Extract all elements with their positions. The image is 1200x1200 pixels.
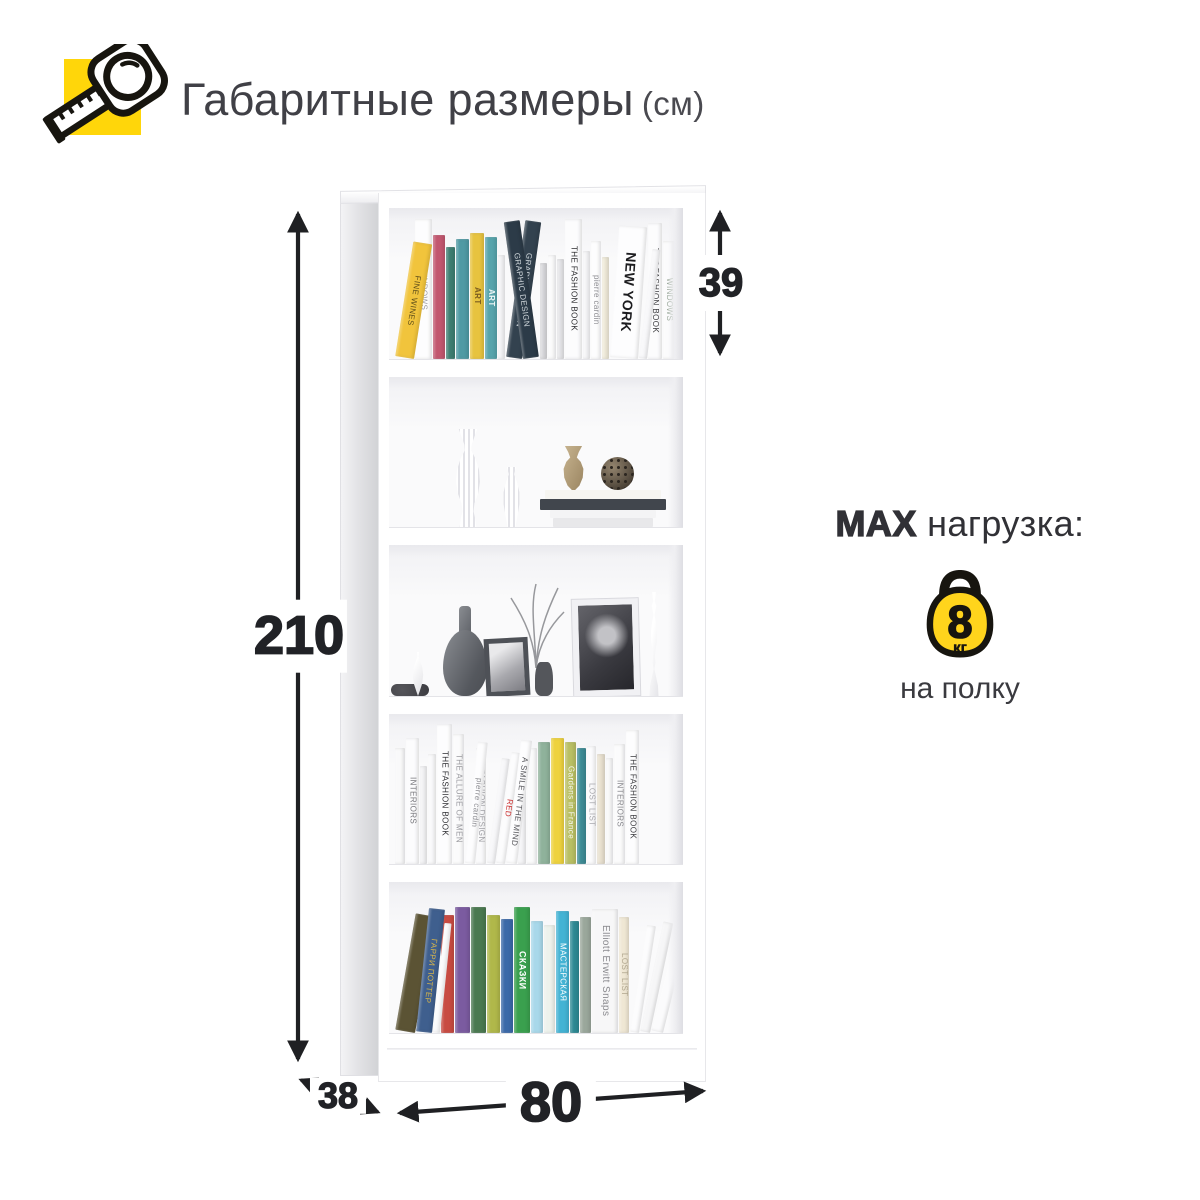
- book-spine: [602, 257, 609, 359]
- page-title: Габаритные размеры(см): [181, 74, 705, 126]
- book-spine: [433, 235, 445, 359]
- book-spine: [540, 263, 547, 359]
- bookcase: FINE WINESWINDOWSARTARTGRAPHIC DESIGNGRA…: [340, 188, 706, 1082]
- dark-trinket: [391, 684, 429, 696]
- shelf-opening-5: ГАРРИ ПОТТЕРСКАЗКИМАСТЕРСКАЯElliott Erwi…: [389, 882, 683, 1034]
- width-dimension-label: 80: [506, 1073, 596, 1131]
- large-photo-frame: [572, 598, 641, 697]
- book-spine: Elliott Erwitt Snaps: [592, 909, 618, 1033]
- shelf-opening-3: [389, 545, 683, 697]
- book-spine: [456, 239, 469, 359]
- white-candlestick: [645, 592, 663, 696]
- shelf-books: FINE WINESWINDOWSARTARTGRAPHIC DESIGNGRA…: [395, 219, 667, 359]
- book-spine: THE ALLURE OF MEN: [453, 734, 464, 864]
- shelf-height-dimension-label: 39: [697, 255, 746, 311]
- book-spine: [597, 754, 605, 864]
- kettlebell-icon: 8 кг: [917, 564, 1003, 670]
- small-ribbed-vase: [495, 467, 528, 527]
- twigs: [505, 580, 567, 668]
- book-spine: [570, 921, 579, 1033]
- depth-dimension-label: 38: [310, 1078, 366, 1114]
- book-spine: [583, 251, 590, 359]
- book-spine: [551, 738, 564, 864]
- book-spine: [420, 766, 427, 864]
- book-spine: Gardens in France: [565, 742, 576, 864]
- book-spine: МАСТЕРСКАЯ: [556, 911, 569, 1033]
- book-spine: WINDOWS: [663, 241, 675, 359]
- book-spine: [557, 259, 564, 359]
- book-spine: LOST LIST: [587, 746, 596, 864]
- book-spine: INTERIORS: [406, 738, 419, 864]
- title-unit: (см): [642, 85, 705, 122]
- tape-measure-icon: [38, 44, 170, 152]
- per-shelf-label: на полку: [808, 672, 1112, 706]
- gray-gourd-vase: [443, 606, 487, 696]
- bookcase-front: FINE WINESWINDOWSARTARTGRAPHIC DESIGNGRA…: [378, 193, 706, 1082]
- book-spine: [446, 247, 455, 359]
- book-spine: THE FASHION BOOK: [565, 219, 582, 359]
- wire-ball-ornament: [601, 457, 634, 490]
- book-spine: [498, 255, 505, 359]
- book-spine: [548, 255, 556, 359]
- tan-vase: [557, 446, 590, 490]
- book-spine: [538, 742, 550, 864]
- max-load-rest: нагрузка:: [917, 503, 1085, 544]
- book-spine: [580, 917, 591, 1033]
- title-text: Габаритные размеры: [181, 74, 634, 125]
- bottle-vase: [535, 662, 553, 696]
- kettlebell-weight-unit: кг: [953, 641, 967, 656]
- book-spine: [501, 919, 513, 1033]
- shelf-books: ГАРРИ ПОТТЕРСКАЗКИМАСТЕРСКАЯElliott Erwi…: [395, 907, 667, 1033]
- book-spine: [395, 748, 405, 864]
- stacked-books: [539, 490, 667, 527]
- book-spine: ART: [485, 237, 497, 359]
- max-load-bold: MAX: [836, 503, 917, 544]
- book-spine: THE FASHION BOOK: [626, 730, 639, 864]
- height-dimension-label: 210: [251, 600, 347, 673]
- book-spine: pierre cardin: [591, 241, 601, 359]
- book-spine: ART: [470, 233, 484, 359]
- book-spine: [606, 758, 613, 864]
- shelf-books: INTERIORSTHE FASHION BOOKTHE ALLURE OF M…: [395, 724, 667, 864]
- book-spine: THE FASHION BOOK: [437, 724, 452, 864]
- book-spine: [531, 921, 543, 1033]
- book-spine: [455, 907, 470, 1033]
- shelf-opening-2: [389, 377, 683, 528]
- dimensions-infographic: Габаритные размеры(см) FINE WINESWINDOWS…: [0, 0, 1200, 1200]
- shelf-opening-1: FINE WINESWINDOWSARTARTGRAPHIC DESIGNGRA…: [389, 208, 683, 360]
- book-spine: [428, 754, 436, 864]
- plinth-seam: [387, 1048, 697, 1050]
- tall-ribbed-vase: [445, 429, 491, 527]
- book-spine: [577, 748, 586, 864]
- book-spine: LOST LIST: [619, 917, 629, 1033]
- shelf-opening-4: INTERIORSTHE FASHION BOOKTHE ALLURE OF M…: [389, 714, 683, 865]
- book-spine: [471, 907, 486, 1033]
- book-spine: [487, 915, 500, 1033]
- book-spine: [544, 925, 555, 1033]
- book-spine: INTERIORS: [614, 744, 625, 864]
- kettlebell-weight: 8: [947, 600, 972, 645]
- book-spine: СКАЗКИ: [514, 907, 530, 1033]
- max-load-heading: MAX нагрузка:: [808, 503, 1112, 545]
